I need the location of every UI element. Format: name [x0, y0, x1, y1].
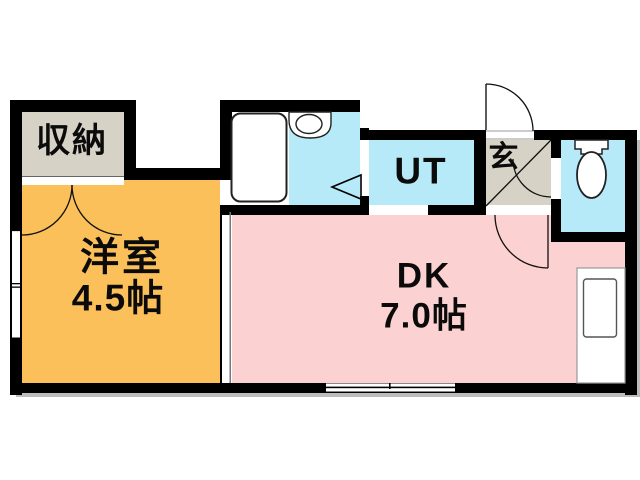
toilet-door-opening [551, 158, 561, 199]
room-size-dk: 7.0帖 [380, 299, 468, 334]
closet-opening [22, 176, 124, 185]
room-label-dk: DK [397, 259, 452, 294]
bathtub-icon [232, 114, 287, 202]
ut-dk-opening [369, 205, 428, 215]
bath-door-opening [361, 140, 369, 196]
room-label-closet: 収納 [36, 124, 108, 158]
room-label-entrance: 玄 [489, 143, 520, 173]
partition-inner-line [230, 212, 232, 383]
entrance-door-icon [486, 84, 533, 131]
floorplan: 収納 洋室 4.5帖 DK 7.0帖 UT 玄 [0, 0, 640, 480]
sink-basin-icon [296, 115, 322, 134]
room-size-western: 4.5帖 [72, 280, 164, 317]
entrance-dk-opening [486, 205, 551, 215]
kitchen-sink-icon [584, 279, 617, 337]
left-window-icon [12, 230, 20, 339]
room-label-ut: UT [394, 153, 447, 190]
toilet-icon [577, 152, 606, 198]
bottom-window-icon [326, 383, 455, 392]
bath-door-opening [361, 112, 369, 128]
room-label-western: 洋室 [80, 239, 164, 278]
